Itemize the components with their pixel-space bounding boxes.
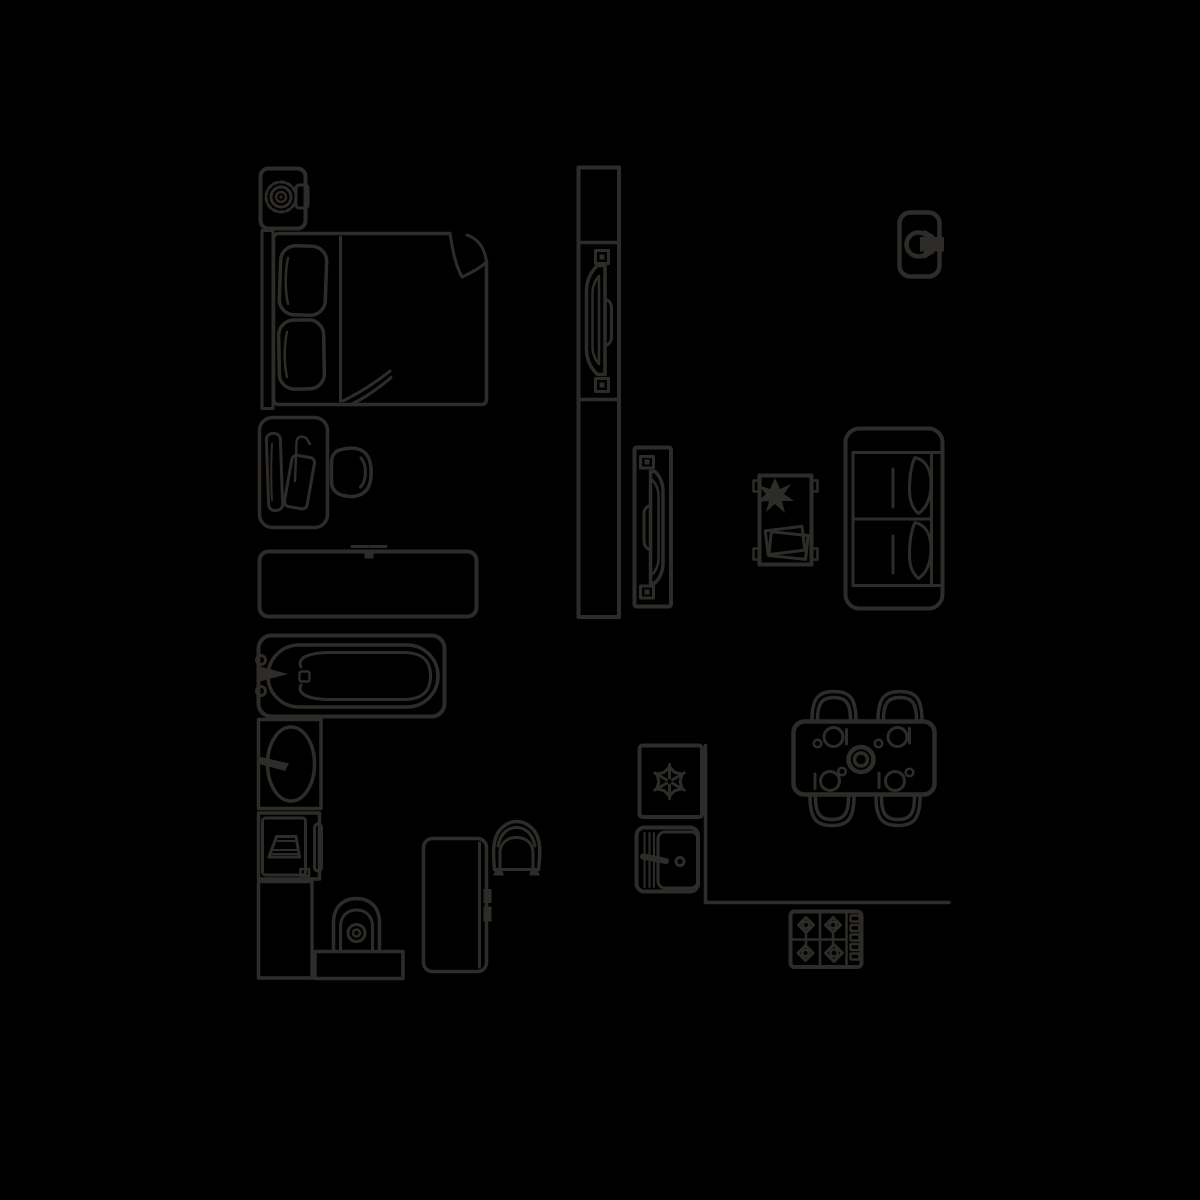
dining-chair [812, 692, 856, 721]
desk-items [266, 433, 315, 510]
sofa-frame-lines [853, 453, 940, 586]
tub-inner [300, 653, 430, 700]
folded-blanket-corner [450, 234, 487, 278]
flush-hole-center [353, 930, 360, 937]
sink [259, 720, 322, 809]
floor-plan [0, 0, 1200, 1200]
hob-knobs [851, 916, 860, 960]
oven [637, 828, 699, 892]
pillow [279, 245, 327, 316]
headboard [262, 231, 273, 409]
oven-knob [676, 858, 684, 866]
fridge [640, 746, 703, 818]
snowflake-icon [652, 765, 686, 799]
washer-drum-icon [266, 182, 296, 212]
dining-set [794, 692, 935, 826]
washing-machine [261, 169, 309, 229]
pillow [278, 320, 324, 390]
basket-icon [269, 837, 300, 858]
laundry-unit [259, 813, 322, 879]
dining-chair [878, 692, 922, 721]
throw-lines [343, 371, 391, 404]
cistern [315, 952, 403, 979]
vanity-desk [260, 418, 328, 528]
coffee-table [754, 476, 818, 565]
work-desk [424, 839, 492, 972]
door-leaf-inner [593, 276, 600, 364]
vanity-chair [332, 448, 372, 496]
door-small [635, 448, 672, 607]
tap-icon [259, 757, 289, 772]
cabinet [259, 882, 313, 979]
desk-chair [493, 822, 540, 876]
back-cushion [910, 458, 932, 514]
magazines [765, 526, 808, 559]
flush-hole [348, 925, 365, 942]
bathtub [257, 636, 445, 717]
hob [791, 912, 862, 968]
tv-bracket [365, 552, 374, 559]
drawer-handle [484, 907, 492, 922]
centre-bowl [849, 747, 874, 772]
dining-chair [876, 797, 920, 826]
sofa [846, 429, 943, 609]
toilet [315, 899, 403, 979]
dining-chair [810, 797, 854, 826]
plant-icon [757, 478, 794, 513]
back-cushion [910, 523, 932, 579]
dresser [260, 547, 477, 617]
drawer-handle [484, 889, 492, 903]
bed [262, 231, 487, 409]
door-large [579, 168, 620, 618]
drain [300, 672, 310, 682]
cutlery-marks [815, 729, 910, 789]
wall-unit-tab [920, 237, 944, 252]
desk-lamp-icon [295, 437, 310, 481]
door-leaf-inner [653, 480, 659, 574]
plates [821, 728, 908, 791]
oven-handle [643, 857, 666, 862]
wall-unit [900, 213, 945, 277]
